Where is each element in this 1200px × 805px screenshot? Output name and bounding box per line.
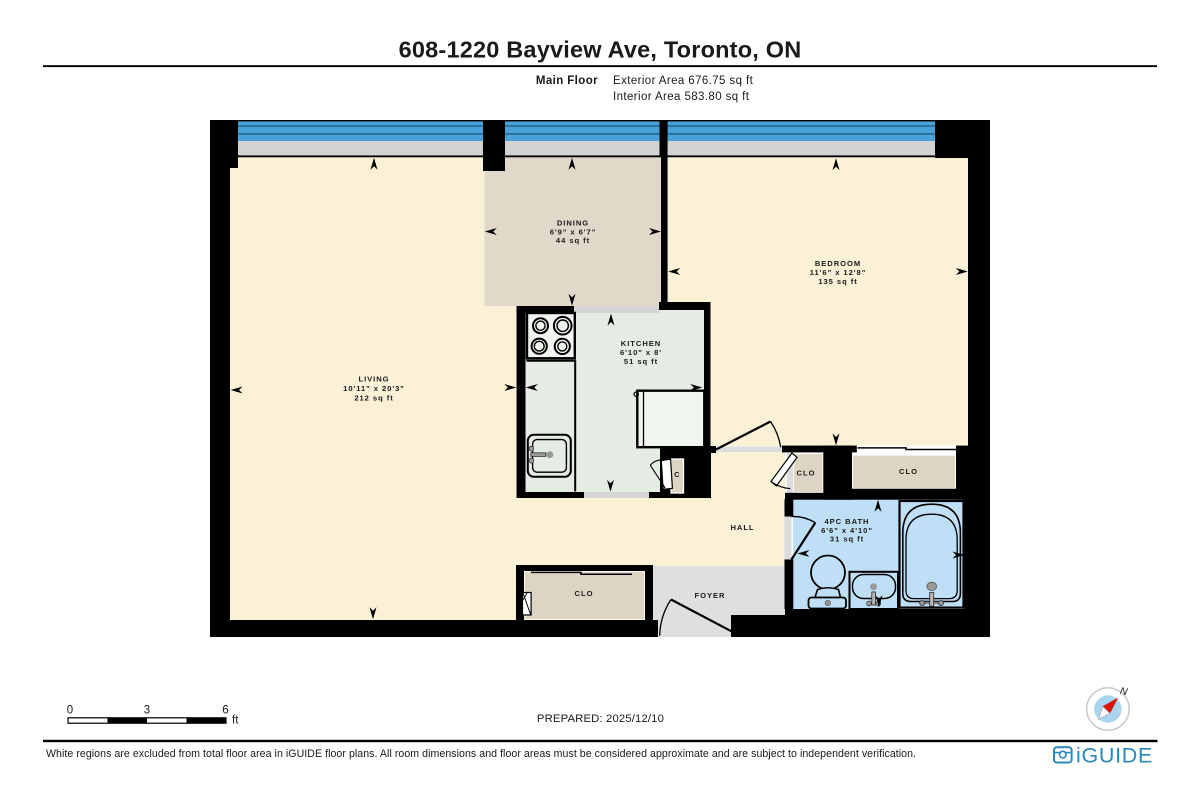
svg-text:6'6" x 4'10": 6'6" x 4'10" — [821, 526, 873, 535]
svg-text:White regions are excluded fro: White regions are excluded from total fl… — [46, 748, 916, 760]
svg-text:C: C — [674, 470, 680, 479]
svg-text:CLO: CLO — [899, 467, 918, 476]
svg-text:212 sq ft: 212 sq ft — [354, 393, 393, 402]
svg-text:44 sq ft: 44 sq ft — [556, 236, 590, 245]
svg-text:BEDROOM: BEDROOM — [815, 259, 861, 268]
svg-text:FOYER: FOYER — [695, 591, 726, 600]
svg-text:608-1220 Bayview Ave, Toronto,: 608-1220 Bayview Ave, Toronto, ON — [399, 36, 802, 62]
svg-text:11'6" x 12'8": 11'6" x 12'8" — [810, 268, 867, 277]
svg-text:6'10" x 8': 6'10" x 8' — [620, 348, 662, 357]
svg-text:135 sq ft: 135 sq ft — [818, 277, 857, 286]
svg-text:Exterior Area 676.75 sq ft: Exterior Area 676.75 sq ft — [613, 75, 754, 87]
svg-text:4PC BATH: 4PC BATH — [824, 517, 869, 526]
svg-text:3: 3 — [144, 704, 150, 716]
svg-text:31 sq ft: 31 sq ft — [830, 535, 864, 544]
svg-text:LIVING: LIVING — [358, 375, 389, 384]
svg-text:CLO: CLO — [575, 589, 594, 598]
svg-text:HALL: HALL — [730, 523, 754, 532]
svg-text:0: 0 — [67, 704, 73, 716]
svg-text:DINING: DINING — [557, 219, 589, 228]
svg-text:51 sq ft: 51 sq ft — [624, 357, 658, 366]
svg-text:iGUIDE: iGUIDE — [1076, 743, 1153, 767]
svg-text:6: 6 — [222, 704, 228, 716]
svg-text:CLO: CLO — [797, 468, 816, 477]
svg-text:ft: ft — [232, 715, 239, 727]
svg-text:6'9" x 6'7": 6'9" x 6'7" — [550, 227, 597, 236]
svg-text:Main Floor: Main Floor — [536, 75, 598, 87]
svg-text:PREPARED: 2025/12/10: PREPARED: 2025/12/10 — [537, 713, 664, 725]
svg-text:Interior Area 583.80 sq ft: Interior Area 583.80 sq ft — [613, 91, 750, 103]
svg-text:KITCHEN: KITCHEN — [621, 339, 661, 348]
svg-text:10'11" x 20'3": 10'11" x 20'3" — [343, 384, 405, 393]
